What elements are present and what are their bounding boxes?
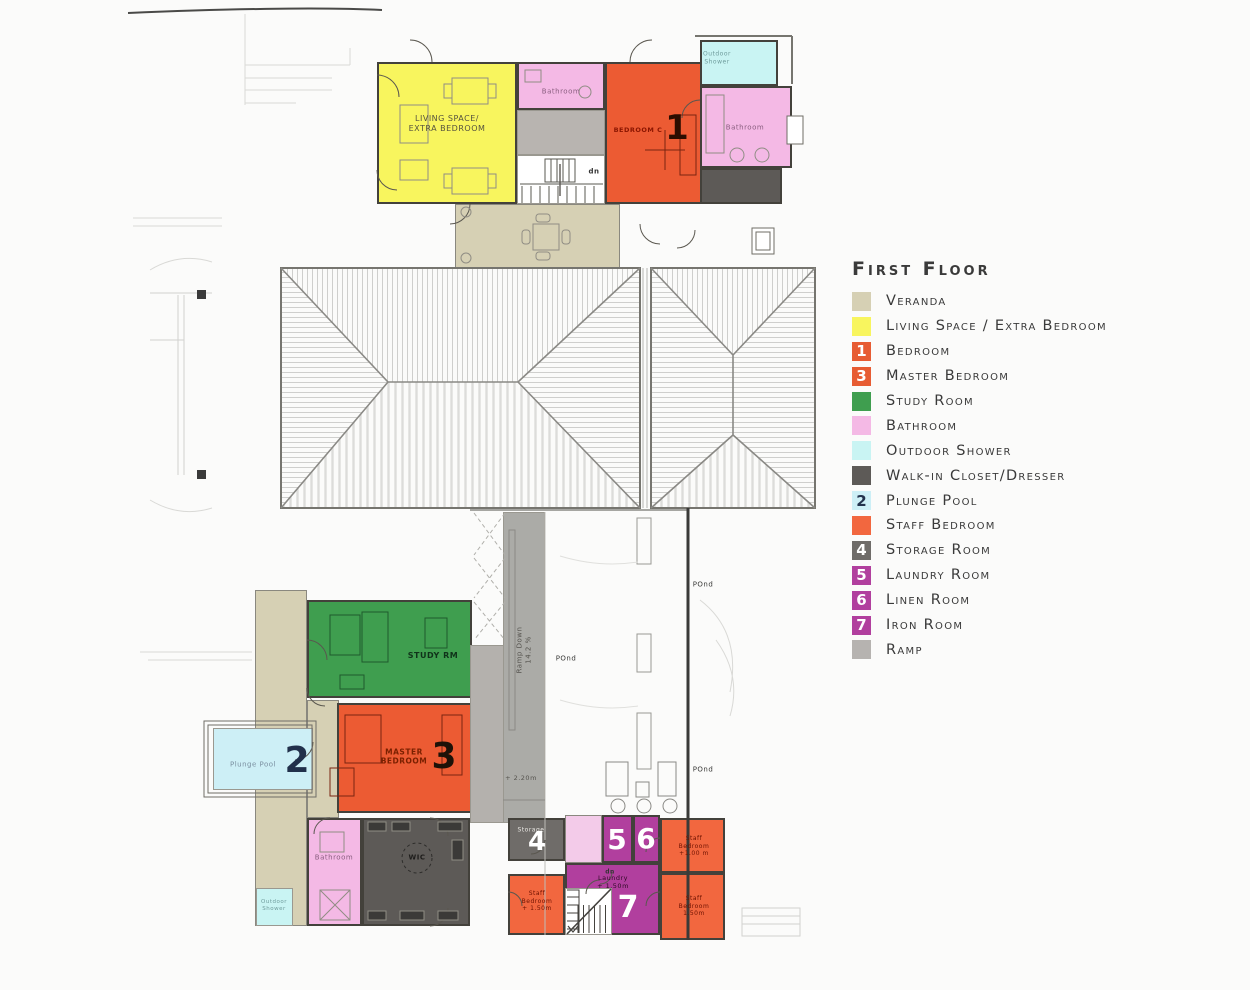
label-outdoor-shower-bottom: Outdoor Shower	[261, 899, 287, 913]
legend-swatch-laundry: 5	[852, 566, 871, 585]
room-bathroom-top	[517, 62, 605, 110]
legend-item-veranda: Veranda	[852, 289, 1212, 314]
legend: First Floor Veranda Living Space / Extra…	[852, 258, 1212, 662]
room-walkin-closet-top	[700, 168, 782, 204]
label-laundry-7: Laundry + 1.50m	[597, 874, 629, 890]
room-walkin-closet-bottom	[362, 818, 470, 926]
number-laundry-5: 5	[607, 826, 626, 854]
room-bathroom-bottom	[307, 818, 362, 926]
legend-swatch-iron: 7	[852, 616, 871, 635]
label-bathroom-right: Bathroom	[726, 124, 764, 133]
legend-swatch-master-bedroom: 3	[852, 367, 871, 386]
legend-item-bathroom: Bathroom	[852, 413, 1212, 438]
number-storage-4: 4	[528, 829, 546, 855]
number-plunge-2: 2	[284, 743, 309, 779]
legend-swatch-ramp	[852, 640, 871, 659]
legend-item-ramp: Ramp	[852, 637, 1212, 662]
pergola	[150, 290, 212, 479]
label-pond-2: POnd	[693, 581, 714, 590]
number-master-3: 3	[431, 739, 456, 775]
label-plunge-pool: Plunge Pool	[230, 761, 276, 770]
legend-swatch-outdoor-shower	[852, 441, 871, 460]
legend-item-master-bedroom: 3 Master Bedroom	[852, 364, 1212, 389]
label-pond-1: POnd	[556, 655, 577, 664]
legend-swatch-storage: 4	[852, 541, 871, 560]
label-study: STUDY RM	[408, 651, 458, 661]
label-staff-bedroom-left: Staff Bedroom + 1.50m	[522, 890, 553, 913]
room-study	[307, 600, 472, 698]
roof-left	[281, 268, 640, 508]
label-wic: WIC	[409, 854, 426, 863]
legend-item-linen: 6 Linen Room	[852, 588, 1212, 613]
veranda-top	[455, 204, 620, 268]
label-outdoor-shower-top: Outdoor Shower	[703, 51, 731, 66]
legend-swatch-walkin-closet	[852, 466, 871, 485]
number-iron-7: 7	[618, 893, 639, 923]
floor-plan: LIVING SPACE/ EXTRA BEDROOM Bathroom dn …	[0, 0, 1250, 990]
legend-item-storage: 4 Storage Room	[852, 538, 1212, 563]
number-linen-6: 6	[636, 825, 655, 853]
label-living-space: LIVING SPACE/ EXTRA BEDROOM	[409, 114, 486, 134]
number-bedroom-1: 1	[665, 111, 689, 145]
roof-right	[651, 268, 815, 508]
legend-swatch-living	[852, 317, 871, 336]
legend-title: First Floor	[852, 258, 1212, 280]
stairwell-bottom	[565, 888, 612, 935]
label-dn-top: dn	[589, 168, 600, 177]
legend-swatch-staff-bedroom	[852, 516, 871, 535]
corridor-top	[517, 110, 605, 155]
legend-item-iron: 7 Iron Room	[852, 613, 1212, 638]
legend-swatch-veranda	[852, 292, 871, 311]
stairwell-top	[517, 155, 605, 204]
roof-gap-lines	[643, 268, 647, 508]
legend-swatch-study	[852, 392, 871, 411]
label-ramp: Ramp Down 14.2 %	[515, 627, 533, 674]
legend-item-plunge-pool: 2 Plunge Pool	[852, 488, 1212, 513]
legend-item-outdoor-shower: Outdoor Shower	[852, 438, 1212, 463]
label-master: MASTER BEDROOM	[381, 748, 428, 767]
label-staff-bedroom-br: Staff Bedroom 1.50m	[679, 895, 710, 918]
legend-item-laundry: 5 Laundry Room	[852, 563, 1212, 588]
corridor-hatch	[474, 513, 505, 640]
legend-swatch-bathroom	[852, 416, 871, 435]
legend-item-staff-bedroom: Staff Bedroom	[852, 513, 1212, 538]
legend-swatch-plunge-pool: 2	[852, 491, 871, 510]
legend-item-walkin-closet: Walk-in Closet/Dresser	[852, 463, 1212, 488]
label-bedroom-c: BEDROOM C	[614, 126, 663, 134]
walkway-gray	[470, 645, 504, 823]
label-bathroom-top: Bathroom	[542, 88, 580, 97]
legend-swatch-bedroom: 1	[852, 342, 871, 361]
legend-item-study: Study Room	[852, 389, 1212, 414]
legend-item-living: Living Space / Extra Bedroom	[852, 314, 1212, 339]
legend-swatch-linen: 6	[852, 591, 871, 610]
legend-item-bedroom: 1 Bedroom	[852, 339, 1212, 364]
label-staff-bedroom-tr: Staff Bedroom +1.00 m	[679, 835, 710, 858]
label-pond-3: POnd	[693, 766, 714, 775]
label-ramp-level: + 2.20m	[505, 774, 537, 782]
label-bathroom-bottom: Bathroom	[315, 854, 353, 863]
label-dn-bottom: dn	[605, 868, 615, 876]
room-wc-small	[565, 815, 602, 863]
